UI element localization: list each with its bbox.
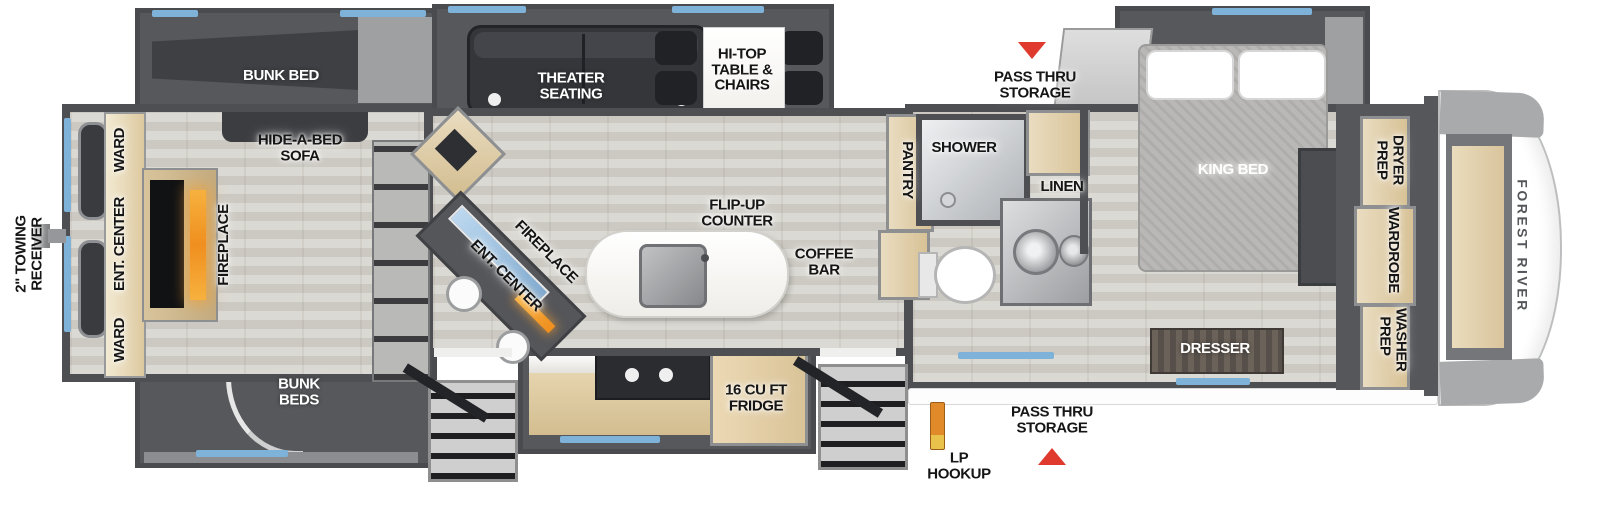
- bunk-bed-label: BUNK BED: [243, 68, 319, 84]
- hide-a-bed-sofa-label: HIDE-A-BED SOFA: [239, 132, 361, 163]
- island-sink: [639, 244, 707, 308]
- window-strip: [64, 118, 71, 212]
- front-cap-top-band: [1439, 90, 1544, 138]
- rear-fireplace-flame: [190, 190, 206, 300]
- window-strip: [560, 436, 660, 443]
- fridge-label: 16 CU FT FRIDGE: [713, 382, 799, 413]
- window-strip: [152, 10, 198, 17]
- window-strip: [1176, 378, 1250, 385]
- window-strip: [1212, 8, 1312, 15]
- ward-bottom-label: WARD: [112, 318, 128, 362]
- window-strip: [958, 352, 1054, 359]
- window-strip: [64, 236, 71, 332]
- toilet: [934, 246, 996, 304]
- dining-chair: [655, 31, 697, 65]
- dryer-prep-label: DRYER PREP: [1374, 134, 1405, 186]
- kitchen-island: [585, 230, 789, 318]
- king-bed-label: KING BED: [1198, 162, 1268, 178]
- pillow: [1146, 50, 1234, 100]
- cupholder: [488, 93, 501, 106]
- front-cap-bottom-band: [1439, 358, 1544, 406]
- faucet: [701, 254, 709, 262]
- dining-chair: [655, 71, 697, 105]
- shower-drain: [940, 192, 956, 208]
- bunk-beds-label: BUNK BEDS: [267, 376, 331, 407]
- washer-prep-label: WASHER PREP: [1377, 308, 1408, 364]
- pillow: [1238, 50, 1326, 100]
- lower-sidewall: [908, 388, 1438, 405]
- bath-vanity: [1000, 198, 1092, 306]
- hi-top-table-label: HI-TOP TABLE & CHAIRS: [696, 47, 788, 94]
- king-slide-side-panel: [1325, 17, 1363, 115]
- burner: [659, 368, 673, 382]
- ent-center-rear-label: ENT. CENTER: [112, 197, 128, 291]
- towing-receiver-hitch-arm: [48, 229, 66, 243]
- bunk-slide-side-panel: [358, 17, 432, 103]
- theater-seating-label: THEATER SEATING: [523, 70, 619, 101]
- ward-top-label: WARD: [112, 128, 128, 172]
- window-strip: [196, 450, 288, 457]
- pass-thru-top-label: PASS THRU STORAGE: [983, 69, 1087, 100]
- window-strip: [340, 10, 426, 17]
- pantry-label: PANTRY: [899, 141, 915, 199]
- fireplace-rear-label: FIREPLACE: [216, 204, 232, 285]
- vanity-sink: [1013, 229, 1059, 275]
- lp-hookup-pipe: [930, 402, 945, 450]
- floorplan-canvas: BUNK BED HIDE-A-BED SOFA WARD ENT. CENTE…: [0, 0, 1600, 527]
- wardrobe-label: WARDROBE: [1385, 207, 1401, 293]
- dresser-label: DRESSER: [1180, 341, 1250, 357]
- coffee-bar-label: COFFEE BAR: [786, 246, 862, 277]
- rear-tv: [150, 180, 184, 308]
- linen-label: LINEN: [1040, 179, 1083, 195]
- round-cabinet-end: [496, 330, 530, 364]
- shower-label: SHOWER: [931, 140, 996, 156]
- lp-hookup-label: LP HOOKUP: [918, 450, 1000, 481]
- interior-steps: [372, 140, 430, 382]
- pass-thru-bottom-label: PASS THRU STORAGE: [1000, 404, 1104, 435]
- flip-up-counter-label: FLIP-UP COUNTER: [690, 197, 784, 228]
- round-cabinet-end: [446, 276, 482, 312]
- front-cap-wardrobe: [1452, 146, 1504, 348]
- towing-receiver-label: 2" TOWING RECEIVER: [13, 192, 44, 316]
- pass-thru-arrow-down-icon: [1018, 42, 1046, 59]
- front-cap-logo: FOREST RIVER: [1515, 179, 1530, 312]
- entry-door-opening: [820, 348, 896, 357]
- burner: [625, 368, 639, 382]
- window-strip: [448, 6, 526, 13]
- entry-door-opening: [434, 348, 512, 357]
- pass-thru-arrow-up-icon: [1038, 448, 1066, 465]
- window-strip: [672, 6, 764, 13]
